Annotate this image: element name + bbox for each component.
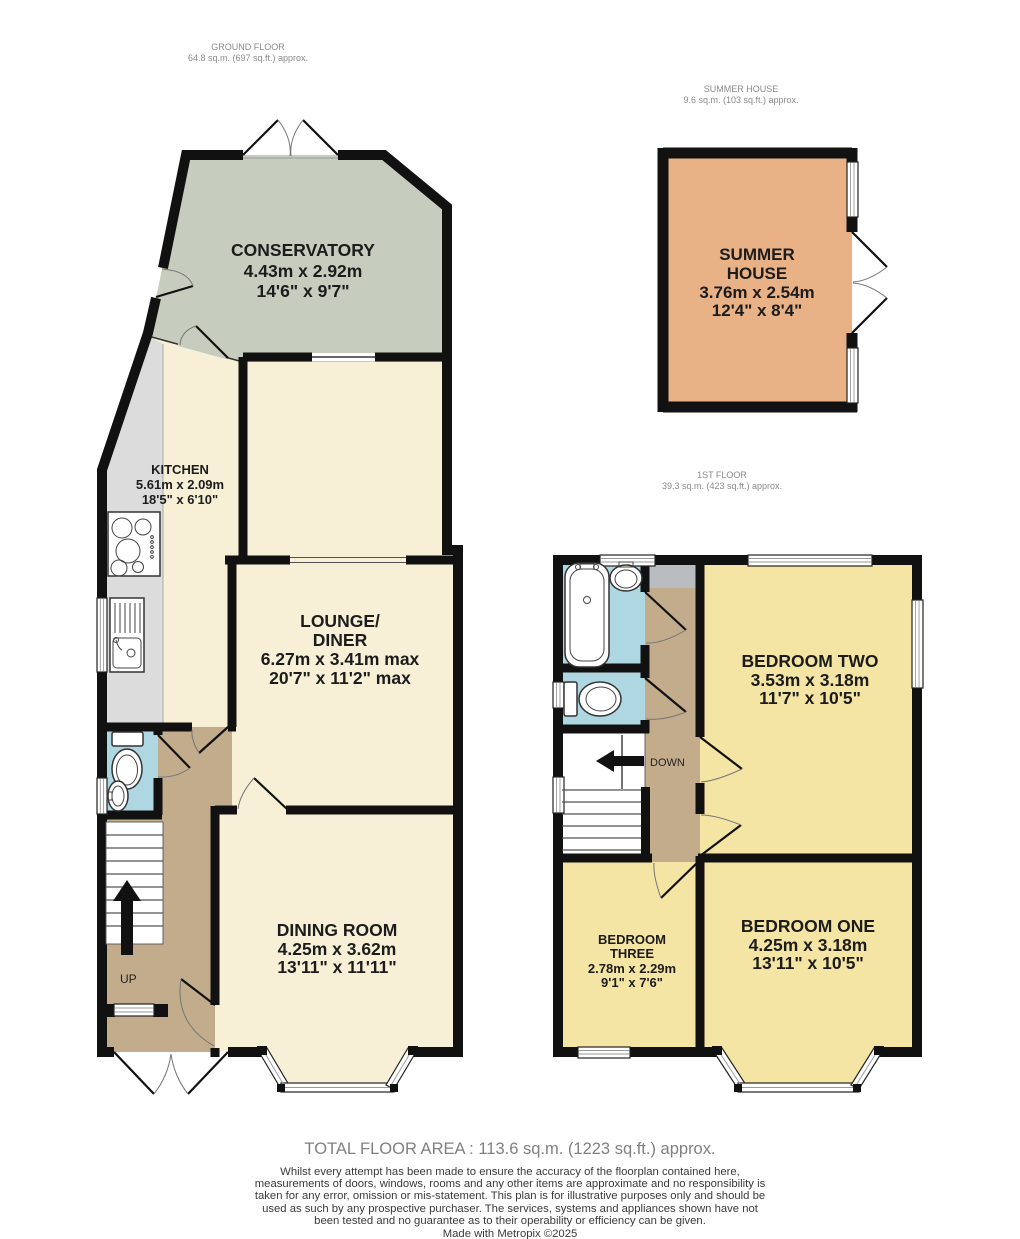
bedroom-two-label: BEDROOM TWO 3.53m x 3.18m 11'7" x 10'5" xyxy=(741,651,878,708)
sink-icon xyxy=(110,598,144,672)
room-dims-metric: 6.27m x 3.41m max xyxy=(261,649,420,669)
room-dims-metric: 4.25m x 3.62m xyxy=(278,939,397,959)
room-name: DINING ROOM xyxy=(277,920,398,940)
lounge-floor xyxy=(225,362,458,810)
room-name: KITCHEN xyxy=(151,462,209,477)
bath-icon xyxy=(565,563,609,667)
summer-house-title: SUMMER HOUSE xyxy=(704,84,779,94)
room-dims-metric: 5.61m x 2.09m xyxy=(136,477,224,492)
basin-icon-ground xyxy=(107,781,128,811)
first-floor-plan: DOWN BEDROOM TWO 3.53m x 3.18m 11'7" x 1… xyxy=(553,555,923,1092)
stairwell xyxy=(562,733,645,862)
room-dims-metric: 4.43m x 2.92m xyxy=(244,261,363,281)
room-name: LOUNGE/ xyxy=(300,611,380,631)
toilet-icon-first xyxy=(564,682,621,716)
bedroom-two-side-window xyxy=(912,600,923,688)
room-dims-imperial: 9'1" x 7'6" xyxy=(601,975,663,990)
room-dims-metric: 3.76m x 2.54m xyxy=(699,283,814,302)
room-dims-imperial: 14'6" x 9'7" xyxy=(256,281,349,301)
floorplan-page: UP CONSERVATORY 4.43m x 2.92m 14'6" x 9'… xyxy=(0,0,1020,1239)
bedroom-one-label: BEDROOM ONE 4.25m x 3.18m 13'11" x 10'5" xyxy=(741,916,875,973)
front-door xyxy=(114,1052,228,1094)
stairs-window xyxy=(553,777,564,813)
kitchen-window xyxy=(97,598,107,672)
ground-floor-area: 64.8 sq.m. (697 sq.ft.) approx. xyxy=(188,53,308,63)
wc-first-window xyxy=(553,682,564,708)
summer-house-window-bottom xyxy=(847,348,858,403)
dining-room-label: DINING ROOM 4.25m x 3.62m 13'11" x 11'11… xyxy=(277,920,398,977)
bedroom-two-top-window xyxy=(748,555,872,566)
bedroom-three-window xyxy=(578,1047,630,1058)
summer-house-window-top xyxy=(847,162,858,217)
summer-house-area: 9.6 sq.m. (103 sq.ft.) approx. xyxy=(683,95,798,105)
total-floor-area: TOTAL FLOOR AREA : 113.6 sq.m. (1223 sq.… xyxy=(0,1140,1020,1159)
bedroom-three-label: BEDROOM THREE 2.78m x 2.29m 9'1" x 7'6" xyxy=(588,932,676,990)
room-dims-imperial: 18'5" x 6'10" xyxy=(142,492,218,507)
room-name: SUMMER xyxy=(719,245,795,264)
room-name2: THREE xyxy=(610,946,654,961)
room-name: BEDROOM ONE xyxy=(741,916,875,936)
bedroom-two-floor xyxy=(700,560,917,858)
hallway-window xyxy=(102,1004,168,1017)
down-label: DOWN xyxy=(650,757,685,769)
room-dims-imperial: 11'7" x 10'5" xyxy=(759,688,861,708)
first-floor-title: 1ST FLOOR xyxy=(697,470,747,480)
ground-floor-plan: UP CONSERVATORY 4.43m x 2.92m 14'6" x 9'… xyxy=(97,120,463,1094)
room-name: BEDROOM TWO xyxy=(741,651,878,671)
floorplan-svg: UP CONSERVATORY 4.43m x 2.92m 14'6" x 9'… xyxy=(0,0,1020,1239)
summer-house-doors xyxy=(852,232,887,333)
hob-icon xyxy=(108,512,160,576)
room-dims-imperial: 12'4" x 8'4" xyxy=(712,301,802,320)
room-name: CONSERVATORY xyxy=(231,240,375,260)
room-dims-imperial: 13'11" x 10'5" xyxy=(752,953,864,973)
wc-window xyxy=(97,778,107,814)
room-dims-imperial: 13'11" x 11'11" xyxy=(277,957,396,977)
room-dims-metric: 2.78m x 2.29m xyxy=(588,961,676,976)
metropix-credit: Made with Metropix ©2025 xyxy=(0,1228,1020,1239)
room-dims-imperial: 20'7" x 11'2" max xyxy=(269,668,411,688)
disclaimer-text: Whilst every attempt has been made to en… xyxy=(252,1166,768,1227)
landing-floor xyxy=(645,588,700,862)
room-dims-metric: 4.25m x 3.18m xyxy=(749,935,868,955)
ground-floor-title: GROUND FLOOR xyxy=(211,42,285,52)
room-name2: HOUSE xyxy=(727,264,787,283)
footer: TOTAL FLOOR AREA : 113.6 sq.m. (1223 sq.… xyxy=(0,1140,1020,1239)
room-dims-metric: 3.53m x 3.18m xyxy=(751,670,870,690)
room-name2: DINER xyxy=(313,630,368,650)
first-floor-area: 39.3 sq.m. (423 sq.ft.) approx. xyxy=(662,481,782,491)
room-name: BEDROOM xyxy=(598,932,666,947)
summer-house-plan: SUMMER HOUSE 3.76m x 2.54m 12'4" x 8'4" xyxy=(663,148,887,412)
up-label: UP xyxy=(120,972,137,986)
